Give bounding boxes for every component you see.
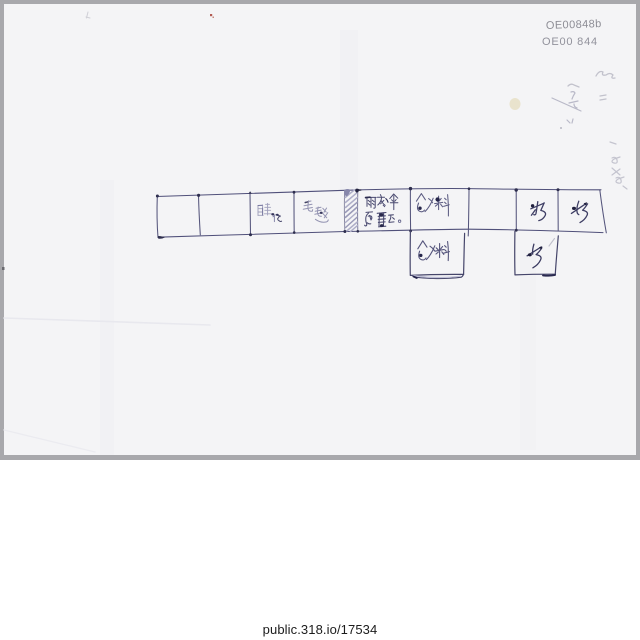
svg-text:OE00 844: OE00 844	[542, 36, 598, 48]
svg-text:OE00848b: OE00848b	[546, 18, 602, 32]
